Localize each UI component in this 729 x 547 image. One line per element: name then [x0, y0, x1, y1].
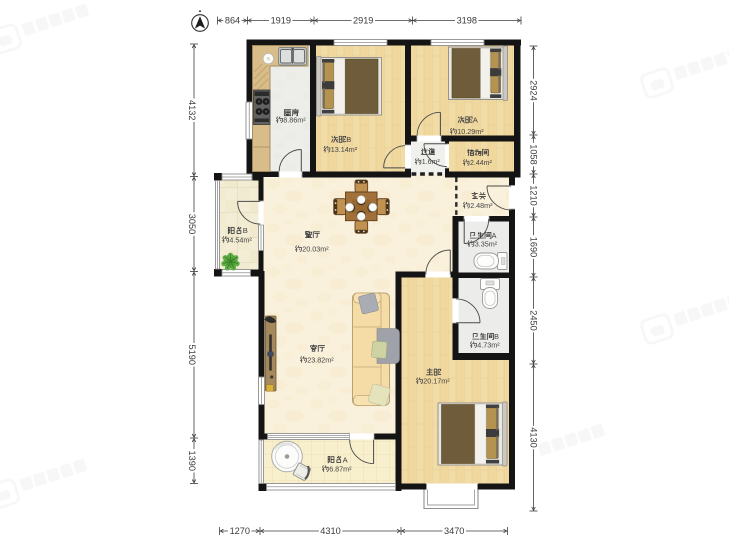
- svg-text:B: B: [346, 135, 351, 144]
- svg-text:5190: 5190: [187, 345, 197, 365]
- svg-text:4132: 4132: [187, 100, 197, 120]
- svg-text:6.87m²: 6.87m²: [329, 464, 352, 473]
- svg-text:2.44m²: 2.44m²: [470, 160, 492, 167]
- svg-text:1390: 1390: [187, 451, 197, 471]
- svg-text:1690: 1690: [528, 237, 538, 257]
- svg-text:2924: 2924: [528, 80, 538, 100]
- svg-text:20.17m²: 20.17m²: [423, 377, 450, 386]
- svg-text:2919: 2919: [353, 16, 373, 26]
- svg-text:3198: 3198: [457, 16, 477, 26]
- svg-text:8.86m²: 8.86m²: [283, 116, 306, 125]
- svg-text:1058: 1058: [528, 144, 538, 164]
- svg-text:23.82m²: 23.82m²: [307, 355, 334, 364]
- svg-text:3050: 3050: [187, 214, 197, 234]
- svg-text:3470: 3470: [444, 526, 464, 536]
- svg-text:20.03m²: 20.03m²: [302, 245, 329, 254]
- svg-text:4310: 4310: [320, 526, 340, 536]
- svg-text:4130: 4130: [528, 427, 538, 447]
- svg-text:1210: 1210: [528, 185, 538, 205]
- svg-text:4.73m²: 4.73m²: [477, 341, 500, 350]
- svg-text:1.6m²: 1.6m²: [422, 159, 441, 166]
- svg-text:4.54m²: 4.54m²: [229, 235, 252, 244]
- svg-text:13.14m²: 13.14m²: [331, 145, 358, 154]
- svg-text:1919: 1919: [271, 16, 291, 26]
- svg-text:1270: 1270: [230, 526, 250, 536]
- svg-text:2450: 2450: [528, 310, 538, 330]
- svg-text:2.48m²: 2.48m²: [470, 201, 493, 210]
- svg-text:10.29m²: 10.29m²: [457, 127, 484, 136]
- svg-text:864: 864: [225, 16, 240, 26]
- svg-text:3.35m²: 3.35m²: [475, 240, 498, 249]
- svg-text:B: B: [243, 226, 248, 235]
